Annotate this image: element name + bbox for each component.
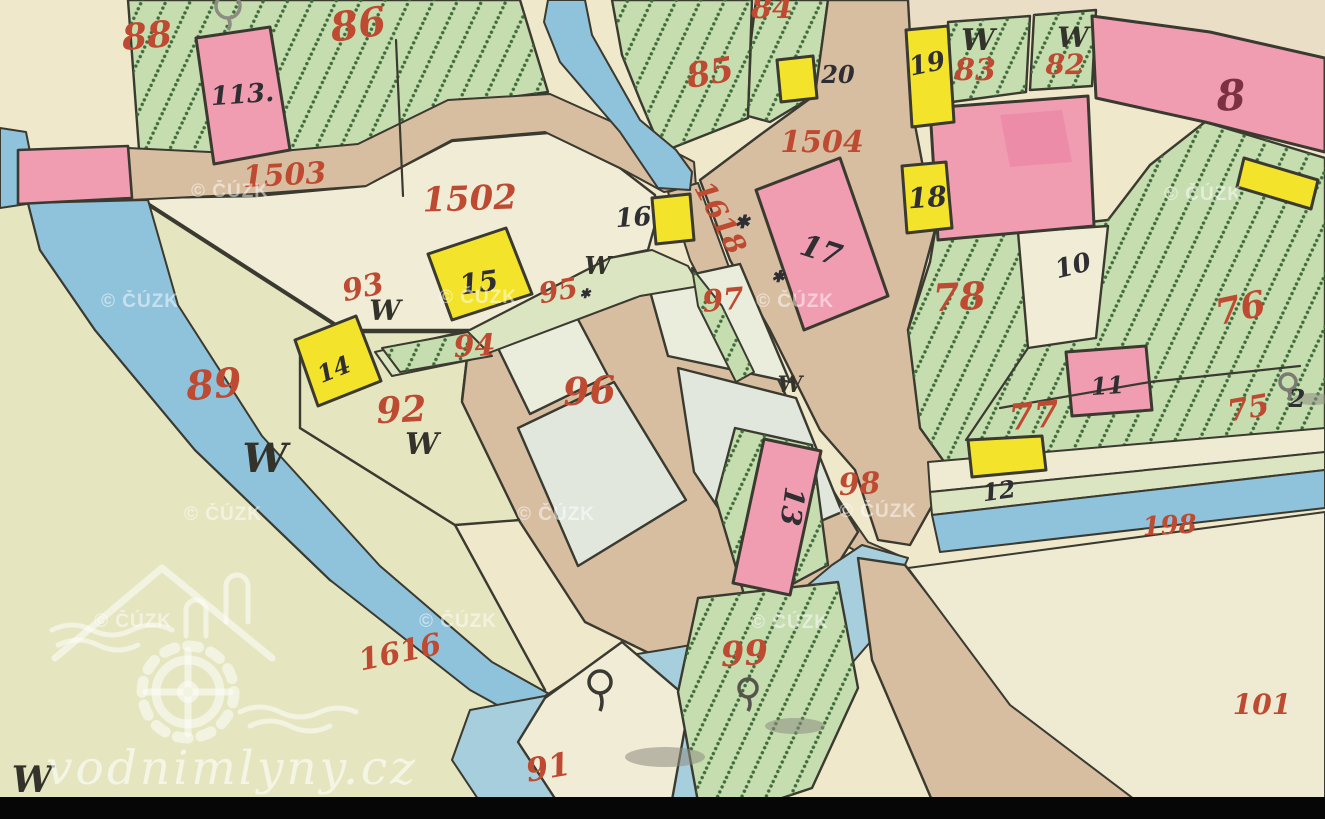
parcel-label-198: 198 xyxy=(1142,510,1198,543)
site-watermark-text: vodnimlyny.cz xyxy=(46,741,418,796)
parcel-label-1502: 1502 xyxy=(422,177,518,220)
parcel-label-W: W xyxy=(585,251,614,280)
parcel-label-18: 18 xyxy=(907,180,948,216)
parcel-label-94: 94 xyxy=(453,328,497,365)
parcel-label-11: 11 xyxy=(1090,370,1125,401)
parcel-label-92: 92 xyxy=(375,388,427,433)
path xyxy=(748,697,750,711)
parcel-label-89: 89 xyxy=(183,359,244,411)
building-12 xyxy=(968,436,1046,477)
parcel-label-113.: 113. xyxy=(210,78,275,112)
parcel-label-78: 78 xyxy=(932,273,987,321)
bridge-strip-pink xyxy=(18,146,132,204)
letterbox-bottom-bar xyxy=(0,797,1325,819)
boundary-mark-star: ✱ xyxy=(771,267,786,286)
cuzk-watermark-text: © ČÚZK xyxy=(839,500,917,522)
cuzk-watermark-text: © ČÚZK xyxy=(184,503,262,525)
path xyxy=(600,693,602,711)
parcel-label-W: W xyxy=(369,294,403,327)
cuzk-watermark-text: © ČÚZK xyxy=(101,290,179,312)
tree-shadow xyxy=(765,718,825,734)
parcel-label-101: 101 xyxy=(1233,688,1291,721)
parcel-label-83: 83 xyxy=(953,53,996,88)
cuzk-watermark-text: © ČÚZK xyxy=(751,611,829,633)
parcel-label-85: 85 xyxy=(682,49,737,97)
parcel-label-W: W xyxy=(243,435,292,482)
cuzk-watermark-text: © ČÚZK xyxy=(1164,183,1242,205)
parcel-label-96: 96 xyxy=(562,367,617,415)
parcel-label-97: 97 xyxy=(701,281,746,320)
parcel-label-98: 98 xyxy=(838,466,882,503)
parcel-10-inset xyxy=(1018,226,1108,348)
parcel-and-building-shapes xyxy=(0,0,1325,819)
parcel-label-W: W xyxy=(778,372,805,398)
cuzk-watermark-text: © ČÚZK xyxy=(517,503,595,525)
parcel-label-13: 13 xyxy=(773,485,811,528)
boundary-mark-star: ✱ xyxy=(580,287,592,302)
parcel-label-1504: 1504 xyxy=(780,125,864,160)
parcel-label-86: 86 xyxy=(326,0,389,52)
parcel-label-20: 20 xyxy=(820,60,855,89)
parcel-label-77: 77 xyxy=(1007,393,1061,439)
cuzk-watermark-text: © ČÚZK xyxy=(419,610,497,632)
parcel-label-W: W xyxy=(961,23,998,58)
map-viewer-page: 8886150315028584150483821618939495979689… xyxy=(0,0,1325,819)
cadastral-map-image[interactable]: 8886150315028584150483821618939495979689… xyxy=(0,0,1325,819)
tree-shadow xyxy=(625,747,705,767)
cuzk-watermark-text: © ČÚZK xyxy=(756,290,834,312)
parcel-label-W: W xyxy=(1057,21,1091,54)
parcel-label-8: 8 xyxy=(1214,70,1248,121)
cuzk-watermark-text: © ČÚZK xyxy=(191,180,269,202)
parcel-label-W: W xyxy=(405,427,442,462)
parcel-label-99: 99 xyxy=(720,633,769,675)
boundary-mark-star: ✱ xyxy=(734,212,751,233)
parcel-label-75: 75 xyxy=(1225,388,1272,430)
path xyxy=(228,18,230,30)
parcel-label-2: 2 xyxy=(1288,384,1306,413)
cuzk-watermark-text: © ČÚZK xyxy=(439,286,517,308)
parcel-label-91: 91 xyxy=(523,745,573,790)
building-blotch xyxy=(1000,110,1072,167)
parcel-label-84: 84 xyxy=(750,0,793,26)
parcel-label-16: 16 xyxy=(614,202,652,234)
building-16 xyxy=(652,194,694,244)
parcel-label-88: 88 xyxy=(119,13,174,59)
parcel-label-95: 95 xyxy=(536,271,580,310)
building-20 xyxy=(777,56,817,102)
parcel-label-12: 12 xyxy=(980,474,1017,507)
